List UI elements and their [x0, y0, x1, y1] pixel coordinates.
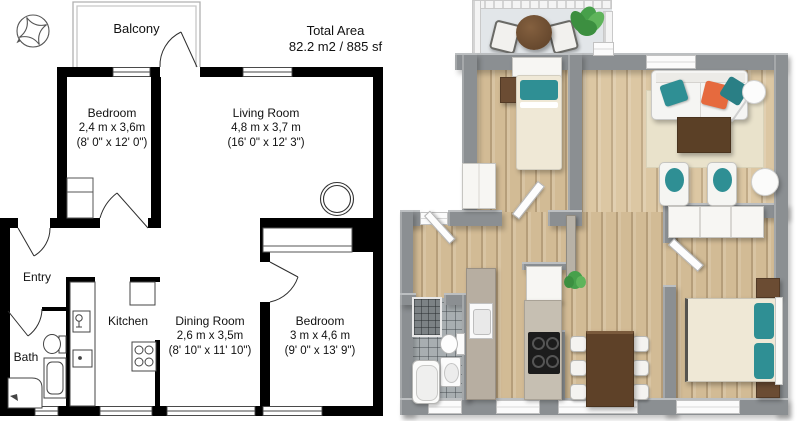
room-label-dining: Dining Room 2,6 m x 3,5m (8' 10" x 11' 1… — [148, 314, 272, 359]
bath-sink — [440, 357, 461, 387]
cooktop — [528, 332, 560, 374]
balcony-door-sill — [593, 42, 614, 56]
wall-bed1-bottom — [548, 210, 582, 226]
wall-bed2-left-b — [663, 285, 676, 415]
room-label-bath: Bath — [0, 350, 52, 365]
kitchen-plant-icon — [560, 266, 590, 296]
bed-double-pillow-1 — [754, 303, 774, 339]
round-table-icon — [321, 183, 354, 216]
kitchen-fridge — [526, 266, 562, 302]
window-top — [646, 55, 696, 69]
bed-single — [516, 75, 562, 170]
room-label-bedroom1: Bedroom 2,4 m x 3,6m (8' 0" x 12' 0") — [58, 106, 166, 151]
kitchen-sink-basin — [473, 309, 491, 335]
bed1-vanity — [512, 57, 562, 77]
balcony-plant-icon — [563, 0, 611, 46]
kitchen-sink — [469, 303, 493, 339]
kitchen-fixtures — [70, 282, 156, 406]
total-area-label: Total Area — [248, 23, 423, 39]
bed2-credenza — [668, 206, 764, 238]
burner-3 — [532, 355, 545, 368]
bed-double-pillow-2 — [754, 343, 774, 379]
closets — [67, 178, 352, 252]
armchair-right-cushion — [713, 168, 732, 192]
wall-divider-bed1 — [568, 53, 582, 210]
total-area: Total Area 82.2 m2 / 885 sf — [248, 23, 423, 55]
bed2-nightstand-top — [756, 278, 780, 298]
dining-chair-1 — [570, 336, 587, 352]
bed1-dresser — [500, 77, 517, 103]
toilet — [440, 332, 464, 354]
coffee-table — [677, 117, 731, 153]
entry-wardrobe — [462, 163, 496, 209]
total-area-value: 82.2 m2 / 885 sf — [248, 39, 423, 55]
dining-chair-3 — [570, 384, 587, 400]
wall-top — [455, 53, 785, 70]
dining-chair-4 — [632, 336, 649, 352]
side-table-round — [751, 168, 779, 196]
window-bottom-4 — [676, 400, 740, 414]
room-label-entry: Entry — [8, 270, 66, 285]
dining-chair-5 — [632, 360, 649, 376]
compass-icon — [16, 15, 49, 47]
armchair-left-cushion — [665, 168, 684, 192]
bed-double — [685, 298, 777, 382]
balcony-label: Balcony — [73, 21, 200, 36]
armchair-left — [659, 162, 689, 206]
dining-chair-2 — [570, 360, 587, 376]
balcony-railing-left — [472, 0, 481, 58]
shower — [412, 297, 442, 337]
toilet-bowl — [440, 334, 458, 354]
bathtub-inner — [416, 365, 438, 401]
bath-fixtures — [8, 335, 66, 409]
dining-chair-6 — [632, 384, 649, 400]
burner-1 — [532, 337, 545, 350]
bed-double-headboard — [775, 297, 783, 385]
burner-4 — [546, 355, 559, 368]
bed-single-pillow — [520, 80, 558, 100]
bath-sink-basin — [444, 363, 459, 383]
window-bottom-2 — [496, 400, 540, 414]
bed-single-sheet — [520, 102, 558, 108]
kitchen-sink-icon — [73, 311, 90, 332]
burner-2 — [546, 337, 559, 350]
floor-plan-screenshot: Balcony Total Area 82.2 m2 / 885 sf Bedr… — [0, 0, 800, 421]
floor-plan-3d — [400, 0, 800, 421]
armchair-right — [707, 162, 737, 206]
balcony-table — [516, 15, 552, 50]
bathtub — [412, 360, 440, 404]
room-label-living: Living Room 4,8 m x 3,7 m (16' 0" x 12' … — [193, 106, 339, 151]
room-label-bedroom2: Bedroom 3 m x 4,6 m (9' 0" x 13' 9") — [258, 314, 382, 359]
floor-plan-2d: Balcony Total Area 82.2 m2 / 885 sf Bedr… — [0, 0, 400, 421]
dining-table — [586, 331, 634, 407]
wall-step-2 — [448, 210, 502, 226]
shower-tray-icon — [8, 378, 42, 408]
